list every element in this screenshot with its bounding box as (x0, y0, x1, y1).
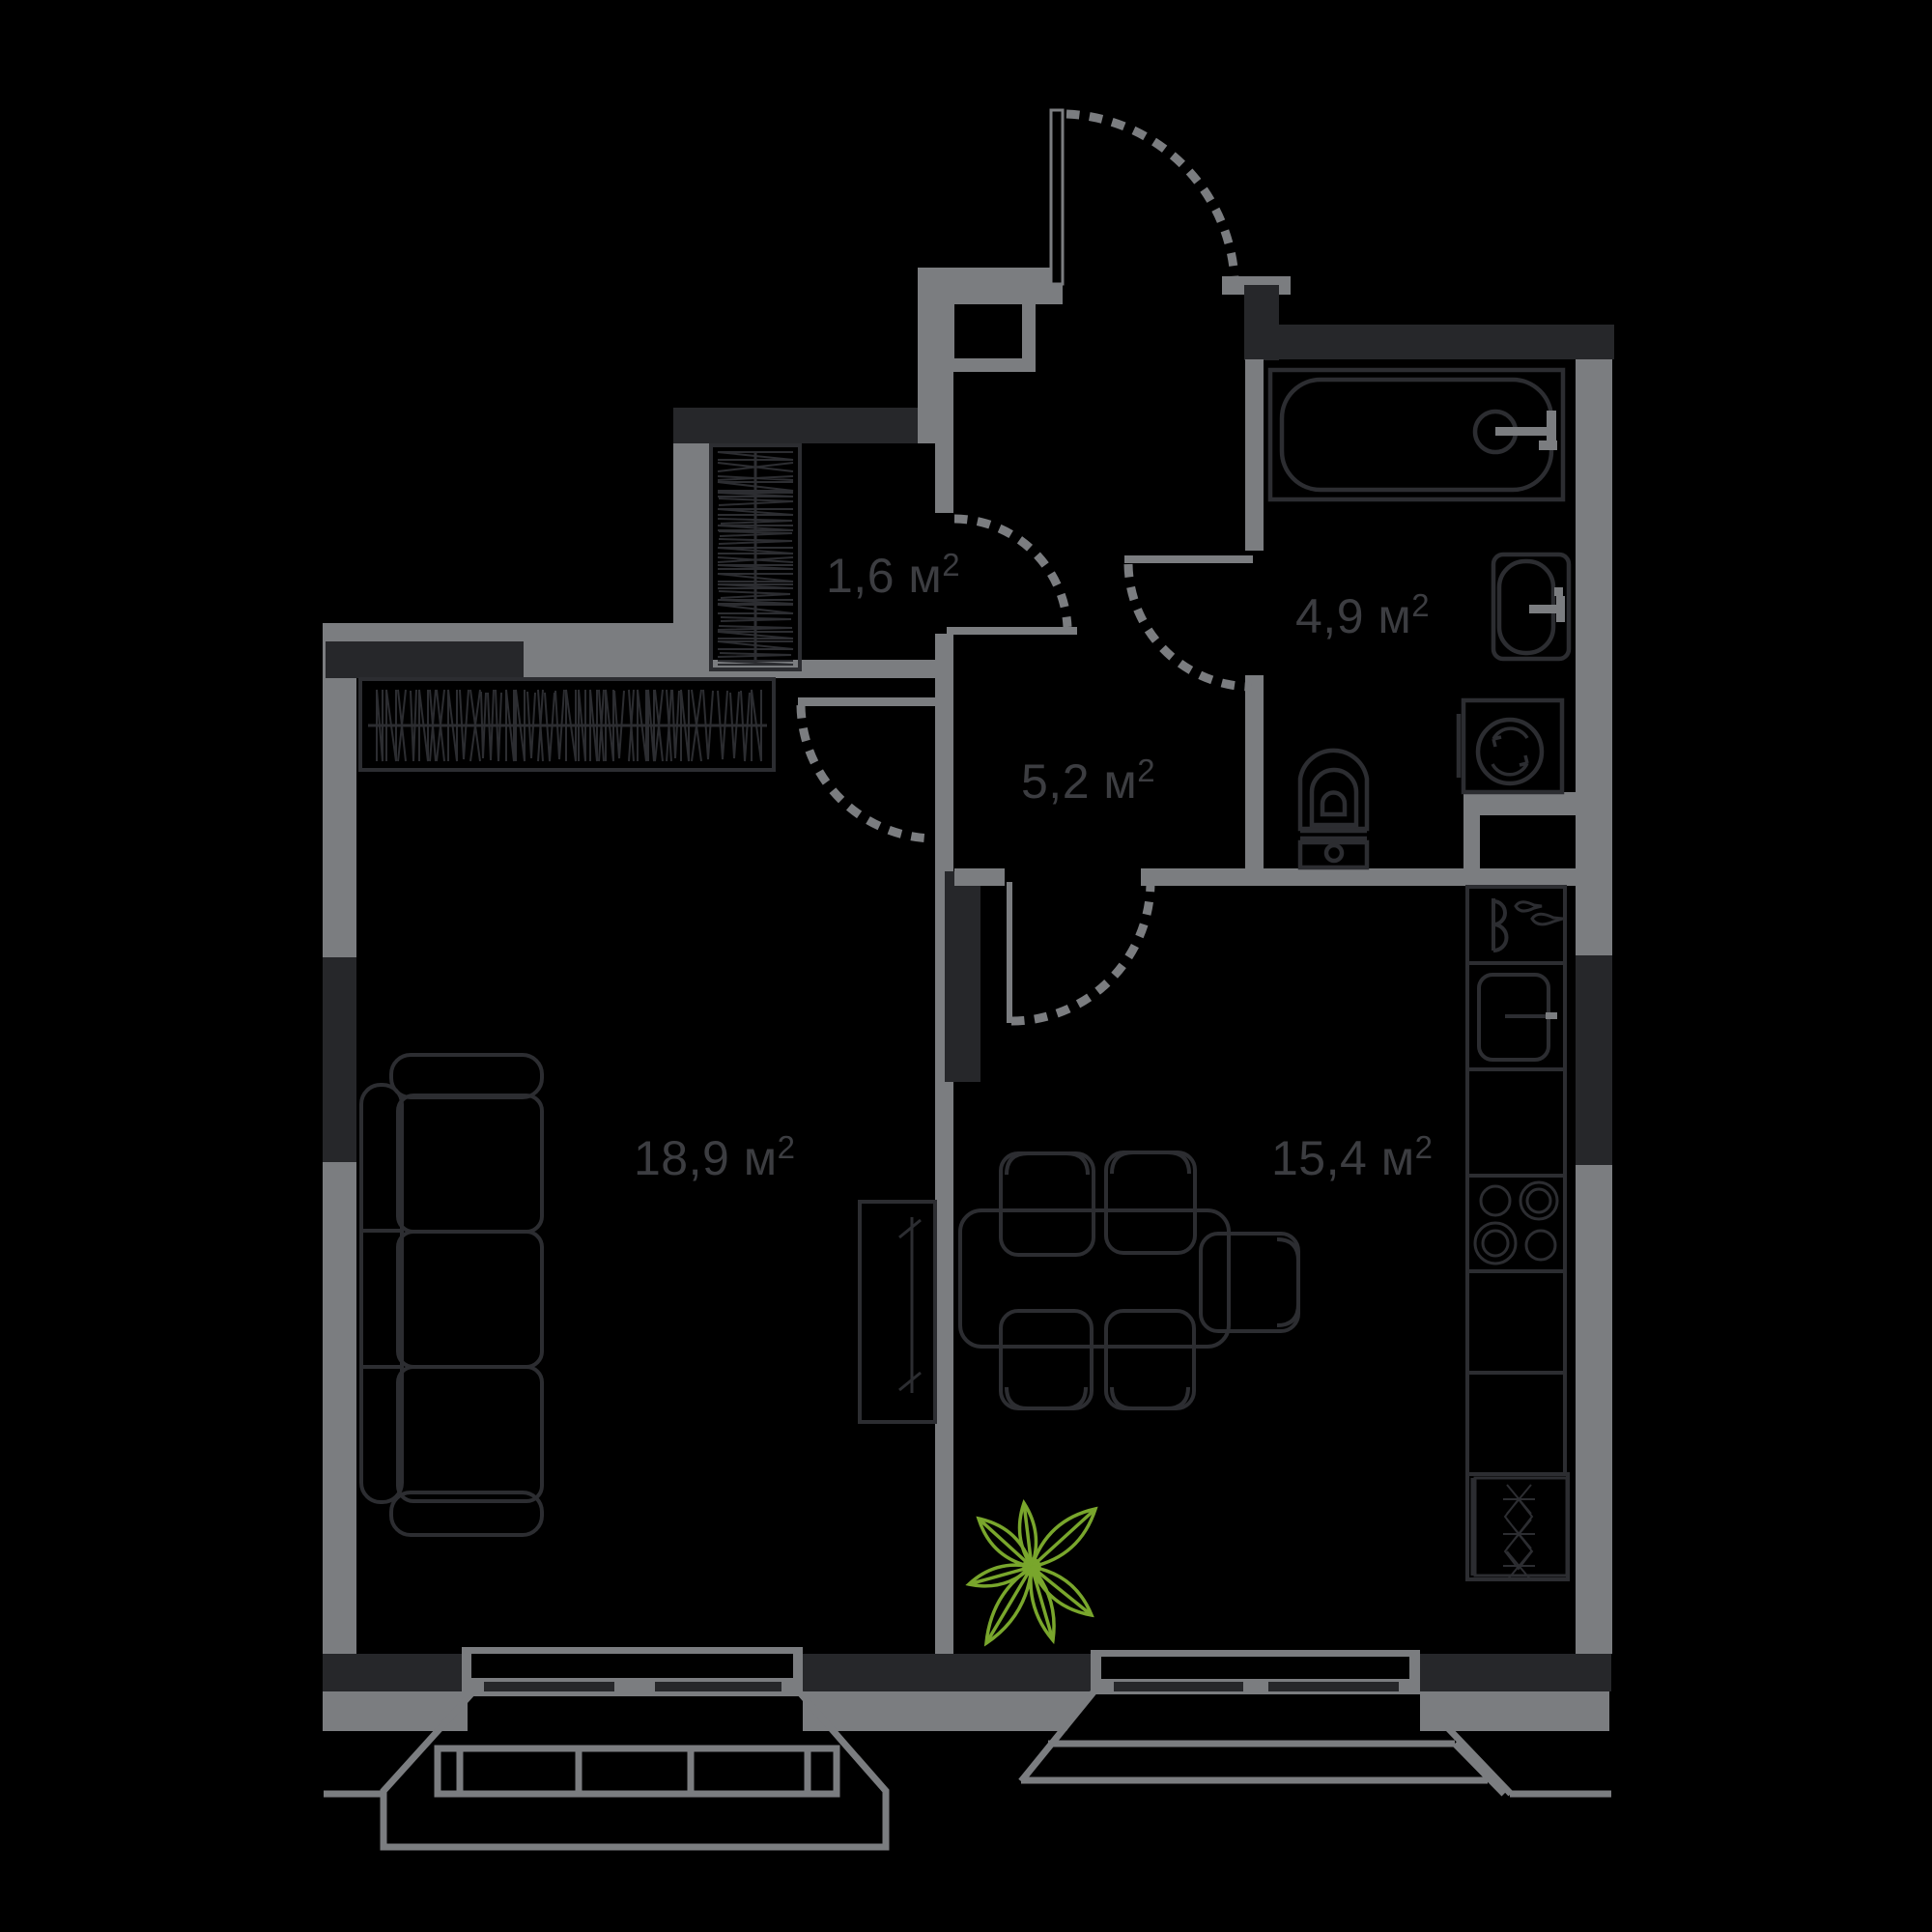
svg-text:1,6 м2: 1,6 м2 (826, 547, 960, 603)
svg-text:5,2 м2: 5,2 м2 (1021, 753, 1155, 809)
svg-text:15,4 м2: 15,4 м2 (1271, 1129, 1433, 1185)
svg-text:4,9 м2: 4,9 м2 (1295, 587, 1430, 643)
svg-text:18,9 м2: 18,9 м2 (634, 1129, 795, 1185)
